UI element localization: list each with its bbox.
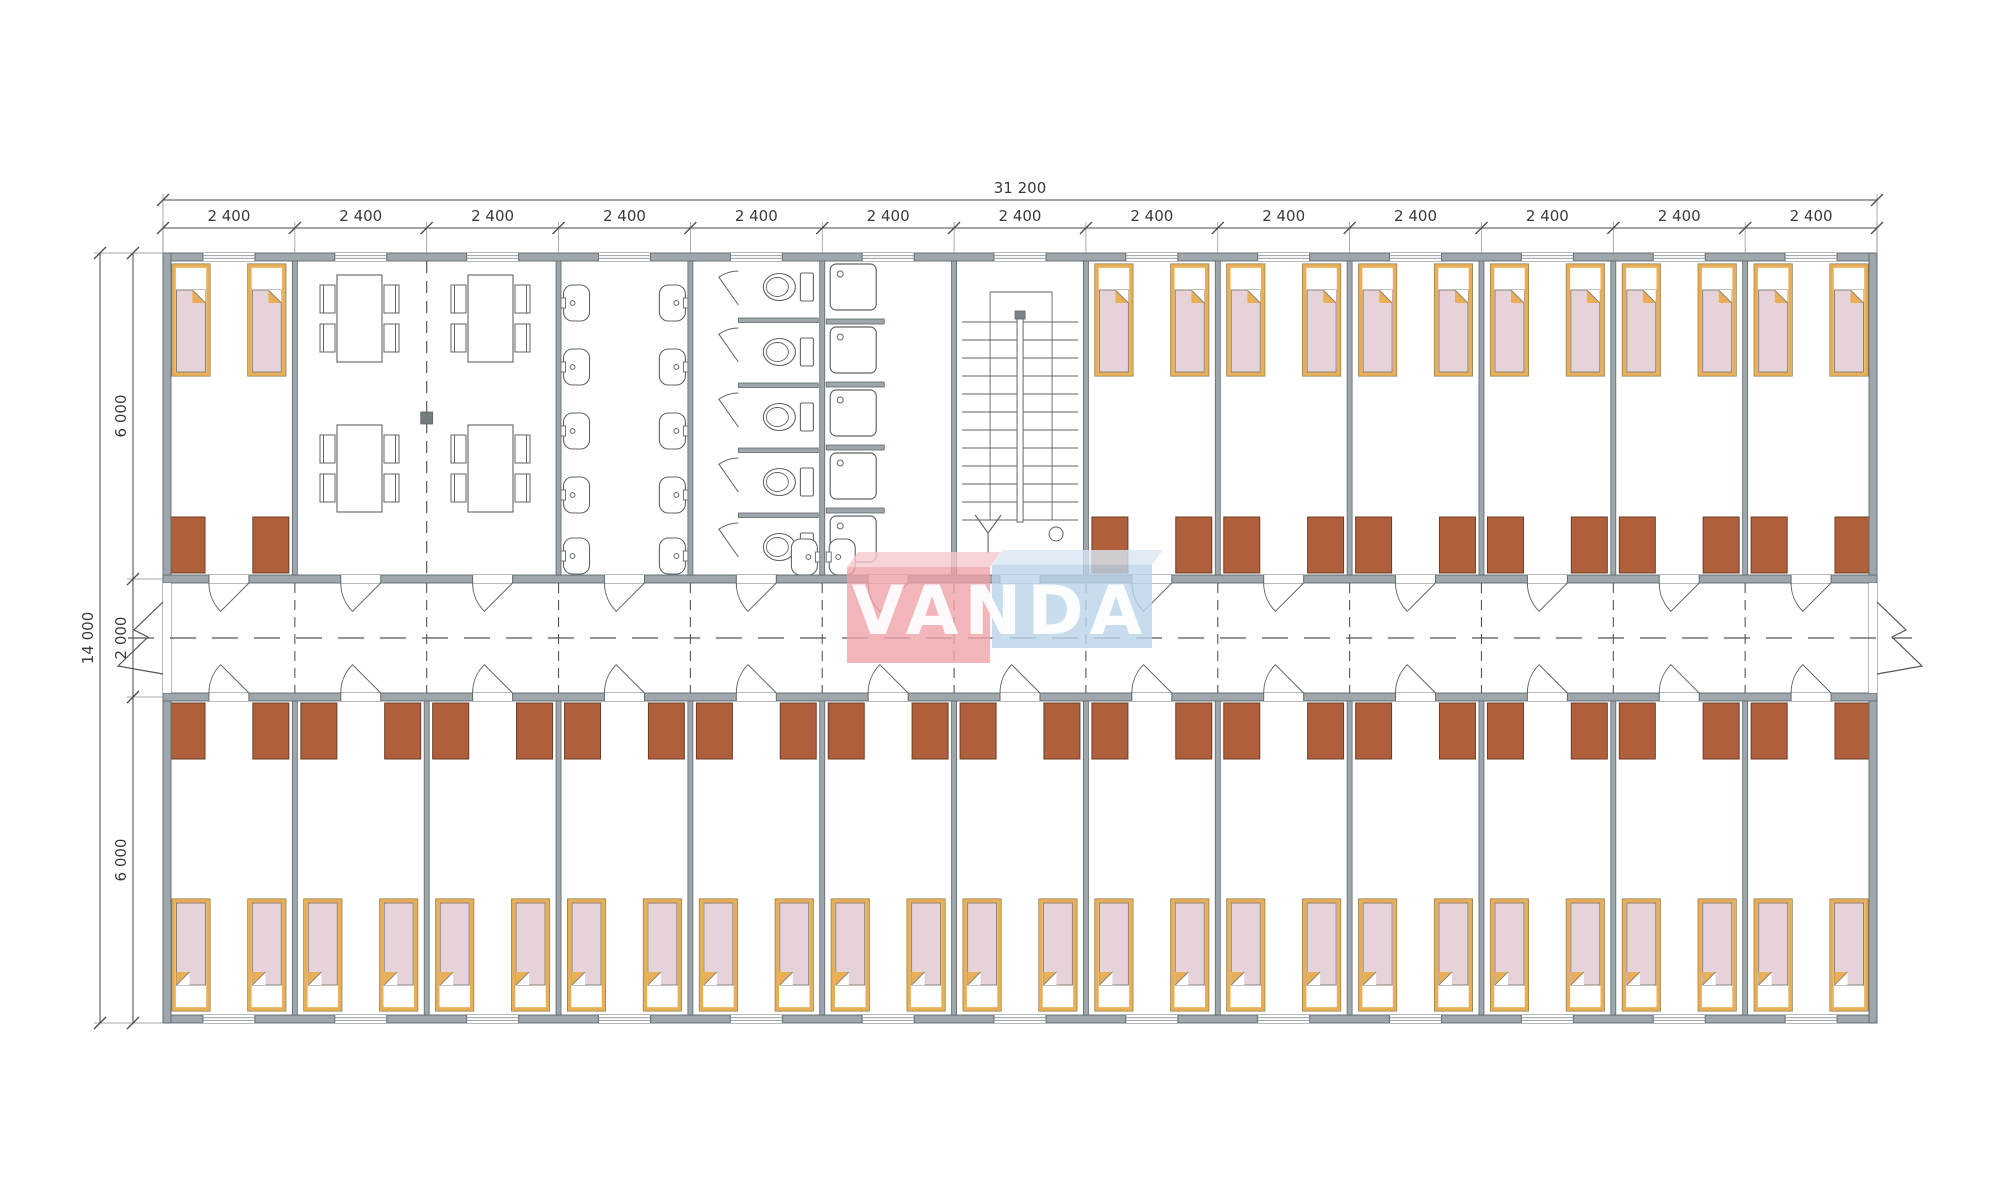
washbasin — [659, 285, 688, 321]
wardrobe — [517, 703, 553, 759]
wardrobe — [1044, 703, 1080, 759]
wardrobe — [169, 517, 205, 573]
bed — [512, 899, 550, 1011]
dining-table — [320, 275, 399, 362]
wardrobe — [1308, 703, 1344, 759]
washbasin — [791, 539, 820, 575]
bed — [1434, 899, 1472, 1011]
wardrobe — [960, 703, 996, 759]
bed — [436, 899, 474, 1011]
wardrobe — [1439, 703, 1475, 759]
bed — [172, 264, 210, 376]
bed — [1490, 899, 1528, 1011]
svg-text:2 400: 2 400 — [1790, 207, 1833, 225]
washbasin — [659, 477, 688, 513]
wardrobe — [1571, 703, 1607, 759]
bed — [1698, 899, 1736, 1011]
bed — [1303, 264, 1341, 376]
washbasin — [659, 413, 688, 449]
dining-table — [451, 425, 530, 512]
wardrobe — [169, 703, 205, 759]
bed — [1754, 899, 1792, 1011]
bed — [907, 899, 945, 1011]
svg-text:2 400: 2 400 — [1526, 207, 1569, 225]
bed — [248, 899, 286, 1011]
bed — [1095, 264, 1133, 376]
wardrobe — [565, 703, 601, 759]
shower-trays — [826, 264, 884, 562]
dining-table — [451, 275, 530, 362]
svg-text:2 000: 2 000 — [112, 617, 130, 660]
wardrobe — [433, 703, 469, 759]
bed — [1566, 899, 1604, 1011]
bed — [963, 899, 1001, 1011]
svg-text:2 400: 2 400 — [735, 207, 778, 225]
washbasin — [561, 477, 590, 513]
wardrobe — [1751, 517, 1787, 573]
dining-table — [320, 425, 399, 512]
wardrobe — [1703, 703, 1739, 759]
svg-text:2 400: 2 400 — [603, 207, 646, 225]
wardrobe — [696, 703, 732, 759]
wardrobe — [1092, 703, 1128, 759]
wardrobe — [1356, 703, 1392, 759]
bed — [1434, 264, 1472, 376]
bed — [568, 899, 606, 1011]
bed — [775, 899, 813, 1011]
bed — [1227, 264, 1265, 376]
floorplan-drawing: 31 2002 4002 4002 4002 4002 4002 4002 40… — [0, 0, 2000, 1200]
vanda-logo-text: VANDA — [852, 572, 1149, 651]
bed — [1039, 899, 1077, 1011]
wardrobe — [1356, 517, 1392, 573]
svg-text:2 400: 2 400 — [1394, 207, 1437, 225]
staircase — [962, 292, 1078, 553]
bed — [1171, 264, 1209, 376]
bed — [172, 899, 210, 1011]
bed — [831, 899, 869, 1011]
wardrobe — [1619, 703, 1655, 759]
washbasin — [561, 413, 590, 449]
bed — [1227, 899, 1265, 1011]
svg-text:2 400: 2 400 — [207, 207, 250, 225]
bed — [1171, 899, 1209, 1011]
wardrobe — [1703, 517, 1739, 573]
svg-text:2 400: 2 400 — [1262, 207, 1305, 225]
bed — [1830, 264, 1868, 376]
wardrobe — [1224, 517, 1260, 573]
svg-text:2 400: 2 400 — [999, 207, 1042, 225]
wc-stalls — [719, 271, 818, 561]
wardrobe — [253, 517, 289, 573]
wardrobe — [912, 703, 948, 759]
wardrobe — [1571, 517, 1607, 573]
wardrobe — [1308, 517, 1344, 573]
svg-text:6 000: 6 000 — [112, 839, 130, 882]
svg-text:31 200: 31 200 — [994, 179, 1047, 197]
svg-text:14 000: 14 000 — [79, 612, 97, 665]
bed — [1622, 264, 1660, 376]
wardrobe — [1176, 703, 1212, 759]
wardrobe — [1176, 517, 1212, 573]
bed — [1095, 899, 1133, 1011]
wardrobe — [1751, 703, 1787, 759]
svg-text:2 400: 2 400 — [867, 207, 910, 225]
bed — [1359, 264, 1397, 376]
washbasin — [561, 349, 590, 385]
wardrobe — [1487, 517, 1523, 573]
wardrobe — [780, 703, 816, 759]
bed — [643, 899, 681, 1011]
svg-text:6 000: 6 000 — [112, 395, 130, 438]
wardrobe — [385, 703, 421, 759]
bed — [1490, 264, 1528, 376]
wardrobe — [648, 703, 684, 759]
bed — [1566, 264, 1604, 376]
bed — [1622, 899, 1660, 1011]
svg-text:2 400: 2 400 — [1130, 207, 1173, 225]
svg-text:2 400: 2 400 — [1658, 207, 1701, 225]
wardrobe — [1835, 517, 1871, 573]
svg-text:2 400: 2 400 — [339, 207, 382, 225]
svg-text:2 400: 2 400 — [471, 207, 514, 225]
floorplan-canvas: 31 2002 4002 4002 4002 4002 4002 4002 40… — [0, 0, 2000, 1200]
wardrobe — [1487, 703, 1523, 759]
bed — [1359, 899, 1397, 1011]
wardrobe — [828, 703, 864, 759]
wardrobe — [1439, 517, 1475, 573]
washbasin — [561, 538, 590, 574]
washbasin — [659, 349, 688, 385]
bed — [304, 899, 342, 1011]
wardrobe — [1224, 703, 1260, 759]
bed — [699, 899, 737, 1011]
bed — [1303, 899, 1341, 1011]
wardrobe — [253, 703, 289, 759]
bed — [248, 264, 286, 376]
wardrobe — [1619, 517, 1655, 573]
bed — [1698, 264, 1736, 376]
bed — [1754, 264, 1792, 376]
washbasin — [561, 285, 590, 321]
washbasin — [659, 538, 688, 574]
wardrobe — [1835, 703, 1871, 759]
bed — [1830, 899, 1868, 1011]
wardrobe — [301, 703, 337, 759]
bed — [380, 899, 418, 1011]
